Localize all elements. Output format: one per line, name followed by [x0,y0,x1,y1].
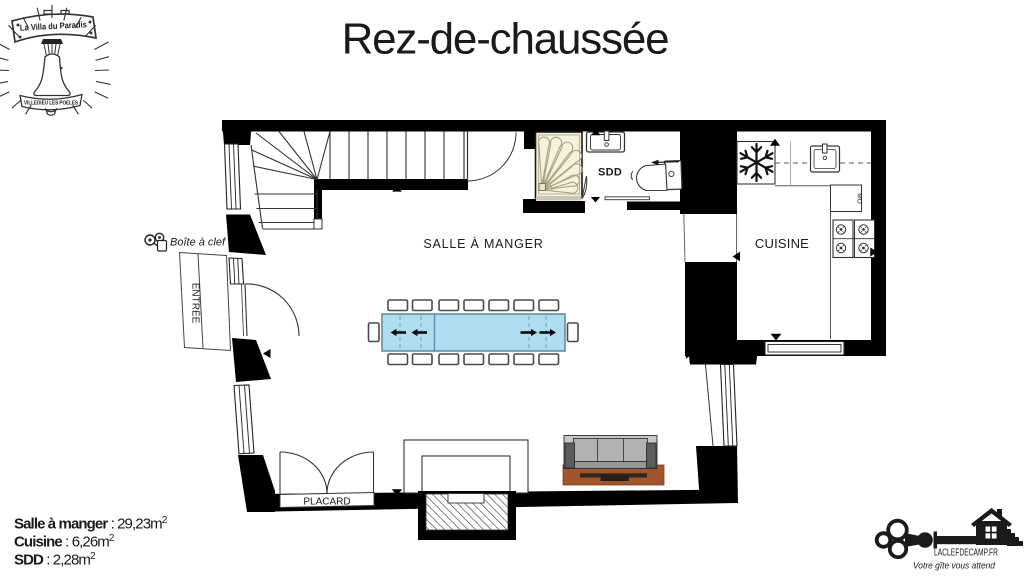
svg-text:Cuisine : 6,26m2: Cuisine : 6,26m2 [14,533,115,551]
svg-text:CUISINE: CUISINE [755,236,809,251]
svg-text:SALLE À MANGER: SALLE À MANGER [423,236,543,251]
svg-text:ENTRÉE: ENTRÉE [190,283,203,324]
svg-text:SDD : 2,28m2: SDD : 2,28m2 [14,551,96,569]
svg-text:MO: MO [856,193,863,203]
svg-text:Boîte à clef: Boîte à clef [170,237,226,249]
svg-text:Rez-de-chaussée: Rez-de-chaussée [342,15,669,64]
svg-text:LACLEFDECAMP.FR: LACLEFDECAMP.FR [934,547,998,559]
svg-text:SDD: SDD [598,167,622,179]
svg-text:Salle à manger : 29,23m2: Salle à manger : 29,23m2 [14,515,168,533]
svg-text:Votre gîte vous attend: Votre gîte vous attend [913,561,996,572]
svg-text:PLACARD: PLACARD [303,497,350,508]
svg-text:VILLEDIEU LES POELES: VILLEDIEU LES POELES [24,101,78,107]
